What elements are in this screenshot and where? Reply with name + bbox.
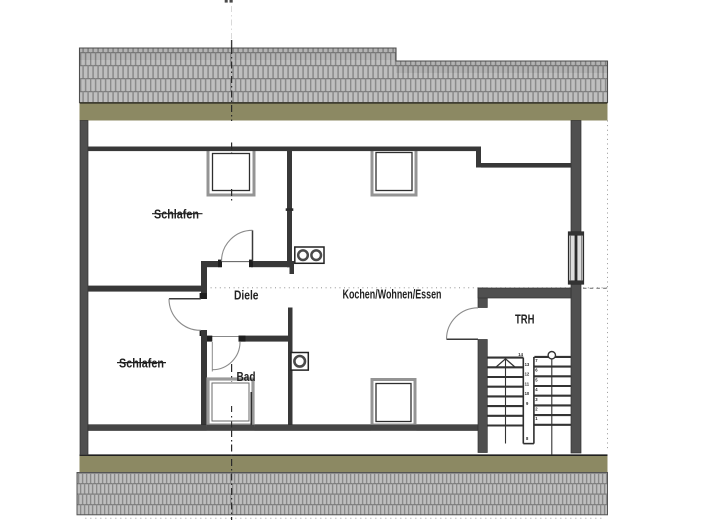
- svg-text:Kochen/Wohnen/Essen: Kochen/Wohnen/Essen: [343, 288, 442, 302]
- svg-text:8: 8: [526, 436, 529, 441]
- svg-text:12: 12: [525, 372, 530, 377]
- svg-text:Diele: Diele: [234, 289, 259, 303]
- svg-text:11: 11: [525, 381, 530, 386]
- svg-text:3: 3: [535, 397, 538, 402]
- svg-text:14: 14: [518, 352, 523, 357]
- svg-text:TRH: TRH: [515, 313, 535, 327]
- svg-text:Bad: Bad: [237, 370, 256, 384]
- svg-text:1: 1: [535, 416, 538, 421]
- svg-text:4: 4: [535, 387, 538, 392]
- svg-text:2: 2: [535, 407, 538, 412]
- svg-text:Schlafen: Schlafen: [154, 208, 199, 222]
- svg-text:7: 7: [535, 358, 538, 363]
- svg-text:Schlafen: Schlafen: [119, 357, 164, 371]
- svg-text:5: 5: [535, 377, 538, 382]
- svg-text:6: 6: [535, 368, 538, 373]
- svg-text:10: 10: [525, 391, 530, 396]
- svg-text:9: 9: [526, 401, 529, 406]
- svg-text:13: 13: [525, 362, 530, 367]
